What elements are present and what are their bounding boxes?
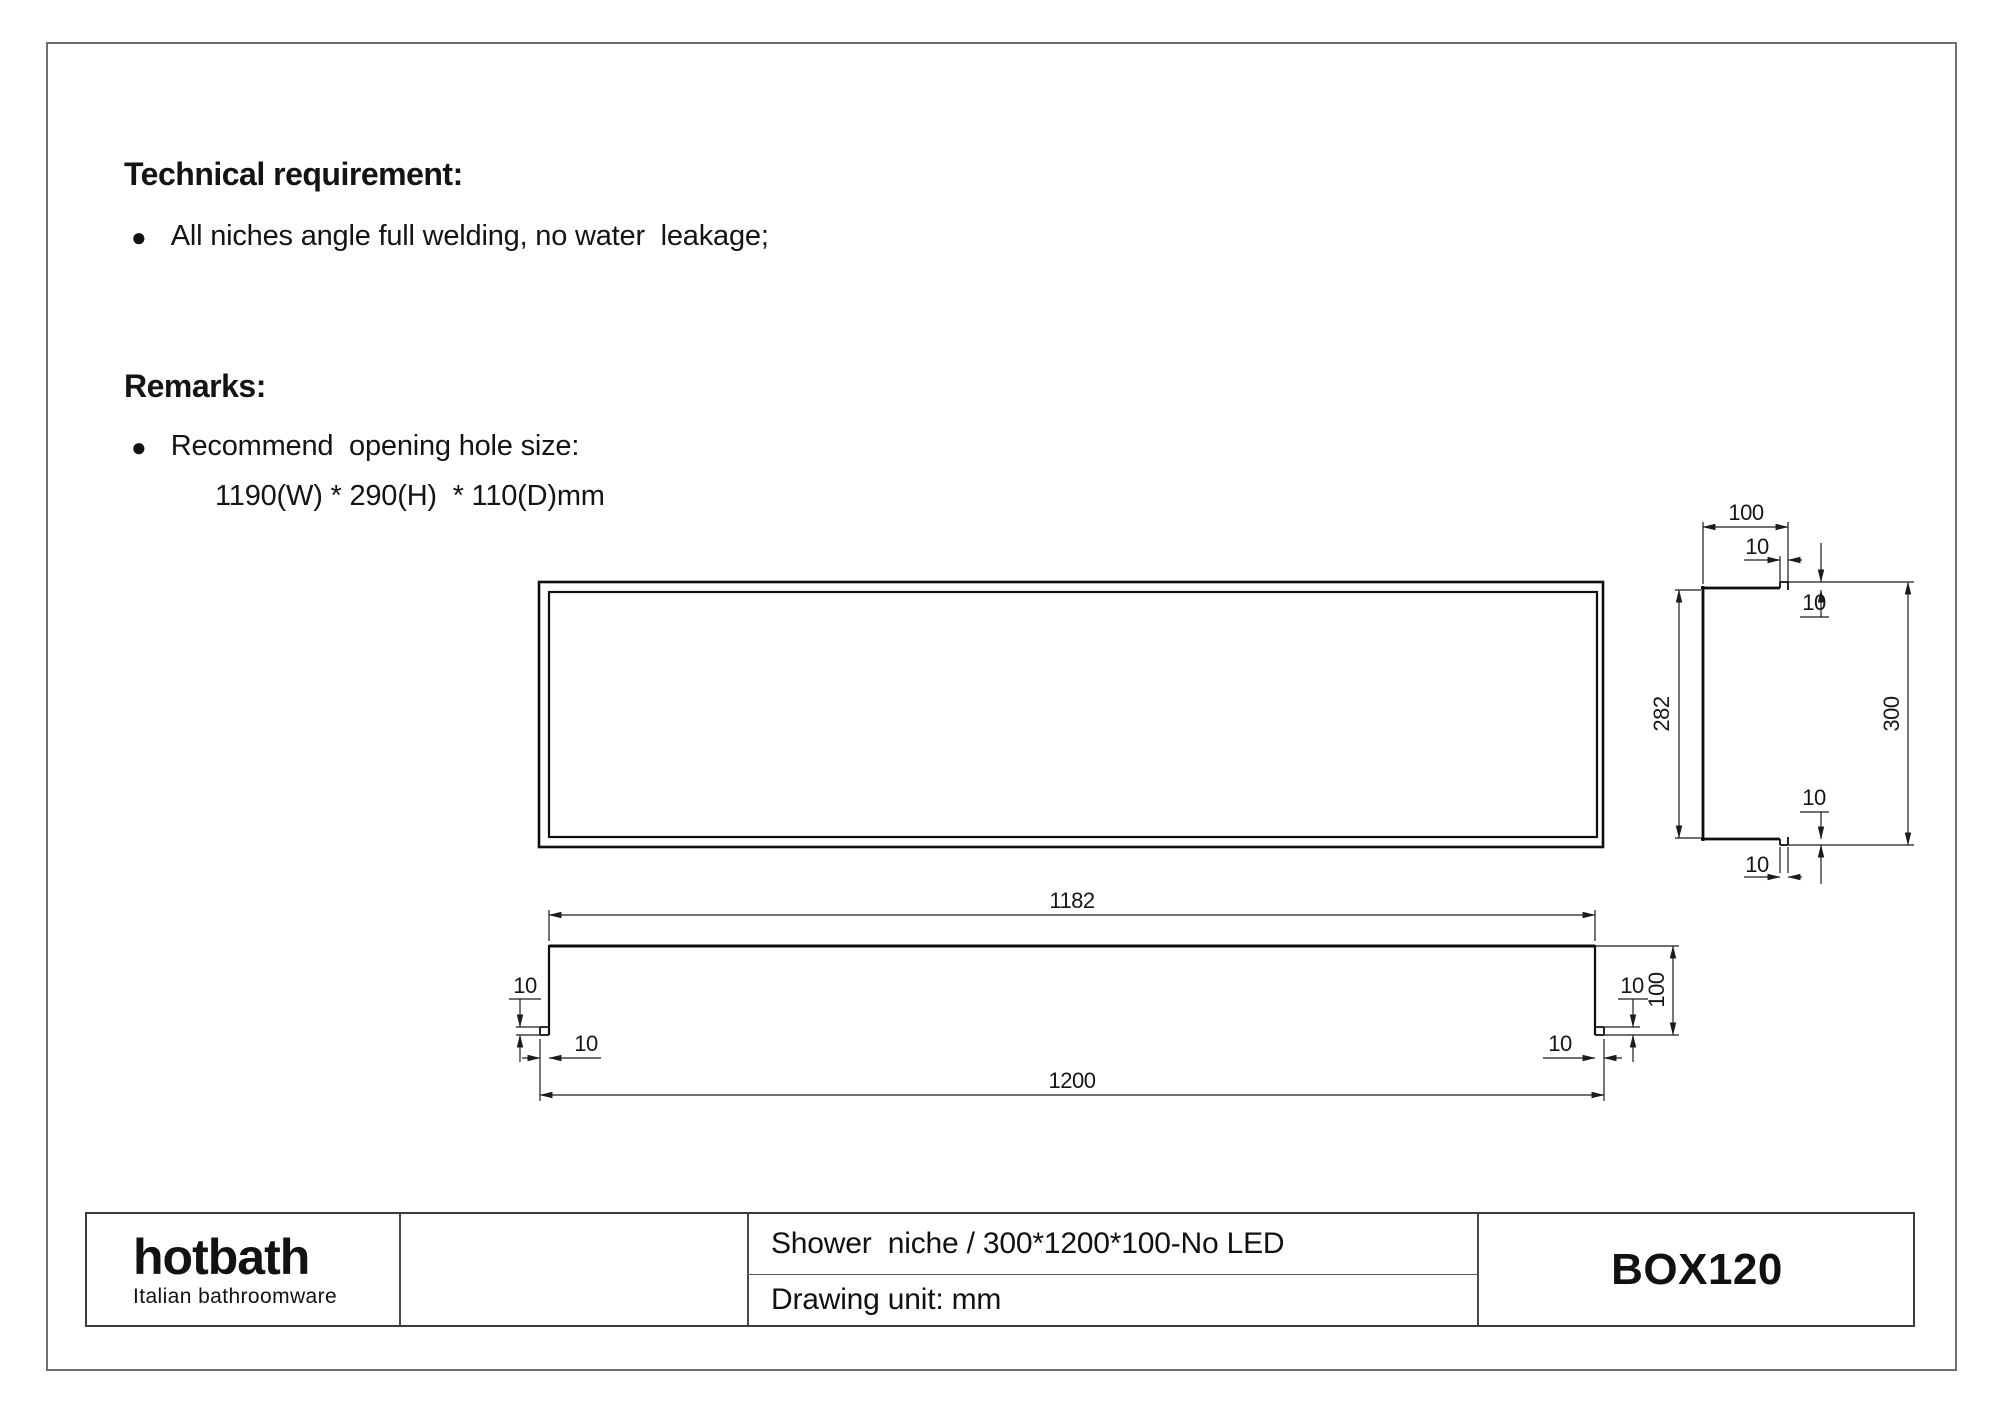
bottom-view-extension-lines <box>516 910 1679 1101</box>
side-view: 100 10 10 282 300 10 10 <box>1649 500 1914 884</box>
dim-label-side-lip-w-bottom: 10 <box>1745 852 1769 877</box>
dim-label-bottom-lip-h-left: 10 <box>574 1031 598 1056</box>
bottom-view-lips <box>540 1027 1604 1035</box>
product-description: Shower niche / 300*1200*100-No LED <box>771 1227 1284 1261</box>
dim-label-bottom-lip-h-right: 10 <box>1548 1031 1572 1056</box>
side-view-channel <box>1701 586 1780 841</box>
dim-label-side-lip-h-top: 10 <box>1802 590 1826 615</box>
dim-label-side-inner-height: 282 <box>1649 696 1674 731</box>
dim-label-bottom-depth: 100 <box>1644 972 1669 1007</box>
dim-label-bottom-lip-v-right: 10 <box>1620 973 1644 998</box>
title-block-logo-cell: hotbath Italian bathroomware <box>87 1214 399 1325</box>
title-block: hotbath Italian bathroomware Shower nich… <box>85 1212 1915 1327</box>
dim-label-bottom-lip-v-left: 10 <box>513 973 537 998</box>
brand-logo: hotbath <box>133 1232 337 1282</box>
front-view-outer-frame <box>539 582 1603 847</box>
dim-label-bottom-inner-width: 1182 <box>1049 888 1095 913</box>
brand-tagline: Italian bathroomware <box>133 1285 337 1309</box>
dim-label-side-lip-h-bottom: 10 <box>1802 785 1826 810</box>
dim-label-side-depth: 100 <box>1728 500 1763 525</box>
model-code-cell: BOX120 <box>1477 1214 1917 1325</box>
front-view-inner-frame <box>549 592 1597 837</box>
dim-label-side-outer-height: 300 <box>1879 696 1904 731</box>
bottom-view: 1182 1200 10 10 10 10 100 <box>509 888 1679 1101</box>
bottom-view-side-walls <box>549 945 1595 1035</box>
front-view <box>539 582 1603 847</box>
model-code: BOX120 <box>1611 1245 1783 1295</box>
side-view-lips <box>1780 582 1788 845</box>
cad-drawing: 100 10 10 282 300 10 10 1182 1200 10 10 … <box>0 0 2000 1414</box>
title-block-description-cell: Shower niche / 300*1200*100-No LED Drawi… <box>747 1214 1477 1325</box>
dim-label-bottom-outer-width: 1200 <box>1049 1068 1096 1093</box>
dim-label-side-lip-w-top: 10 <box>1745 534 1769 559</box>
title-block-empty-cell <box>399 1214 747 1325</box>
drawing-unit: Drawing unit: mm <box>771 1283 1001 1317</box>
